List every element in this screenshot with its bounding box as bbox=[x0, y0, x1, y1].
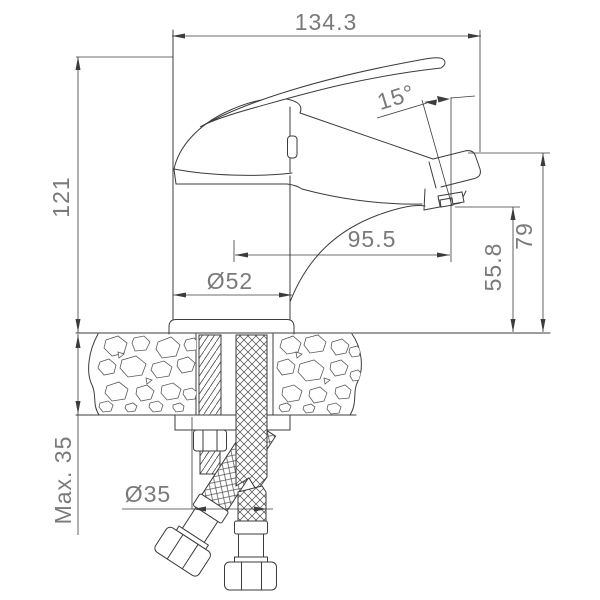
dim-aerator-height-label: 55.8 bbox=[480, 243, 506, 292]
countertop-section-left bbox=[89, 334, 199, 415]
spout-outlet bbox=[429, 151, 480, 188]
handle-cap-dome bbox=[174, 98, 296, 169]
dimension-spout-reach: 95.5 bbox=[234, 207, 451, 262]
dimension-spout-angle: 15° bbox=[374, 79, 475, 207]
dimension-overall-height: 121 bbox=[48, 57, 173, 333]
faucet-technical-drawing: 134.3 121 15° 95.5 Ø52 55.8 bbox=[0, 0, 600, 600]
dimension-max-mounting-thickness: Max. 35 bbox=[50, 334, 99, 535]
dim-max-mounting-thickness-label: Max. 35 bbox=[50, 436, 76, 525]
dim-outlet-height-label: 79 bbox=[511, 222, 537, 250]
body-bottom-edge bbox=[302, 189, 422, 204]
dim-base-diameter-label: Ø52 bbox=[207, 268, 253, 294]
dim-total-width-label: 134.3 bbox=[295, 9, 358, 35]
stone-texture-left bbox=[98, 336, 199, 412]
dim-overall-height-label: 121 bbox=[48, 176, 74, 217]
dim-spout-reach-label: 95.5 bbox=[348, 226, 397, 252]
dimension-outlet-height: 79 bbox=[468, 153, 550, 332]
mounting-nut bbox=[194, 430, 227, 451]
countertop-section-right bbox=[273, 334, 362, 415]
technical-drawing-canvas: 134.3 121 15° 95.5 Ø52 55.8 bbox=[0, 0, 600, 600]
threaded-stud bbox=[199, 335, 221, 415]
dimension-base-diameter: Ø52 bbox=[173, 268, 292, 298]
body-top-edge bbox=[300, 113, 433, 159]
mounting-flange bbox=[169, 320, 294, 335]
dim-spout-angle-label: 15° bbox=[374, 79, 418, 115]
stone-texture-right bbox=[277, 335, 362, 414]
dim-hole-diameter-label: Ø35 bbox=[125, 481, 171, 507]
neck-sweep bbox=[290, 206, 425, 302]
indicator-tab bbox=[288, 136, 298, 158]
